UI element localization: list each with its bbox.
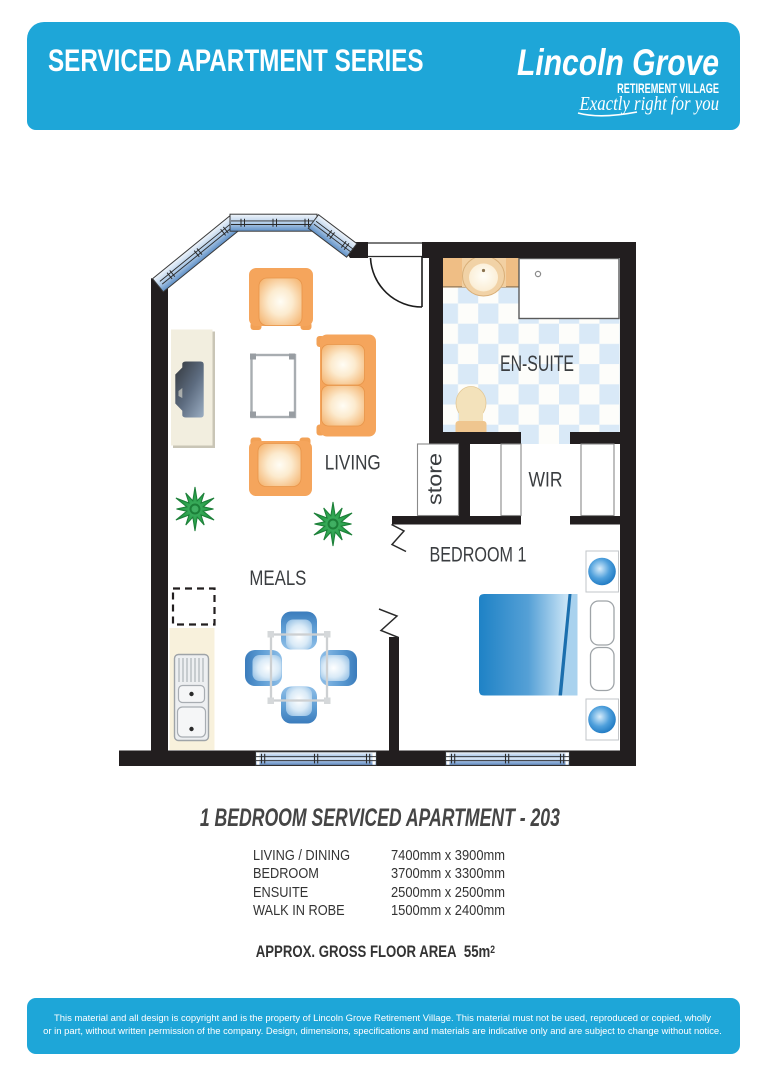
svg-text:EN-SUITE: EN-SUITE bbox=[500, 351, 574, 376]
svg-text:MEALS: MEALS bbox=[249, 566, 306, 590]
svg-text:LIVING: LIVING bbox=[325, 451, 381, 475]
svg-text:store: store bbox=[424, 453, 446, 505]
svg-text:WIR: WIR bbox=[529, 468, 563, 492]
svg-text:BEDROOM 1: BEDROOM 1 bbox=[430, 543, 527, 567]
